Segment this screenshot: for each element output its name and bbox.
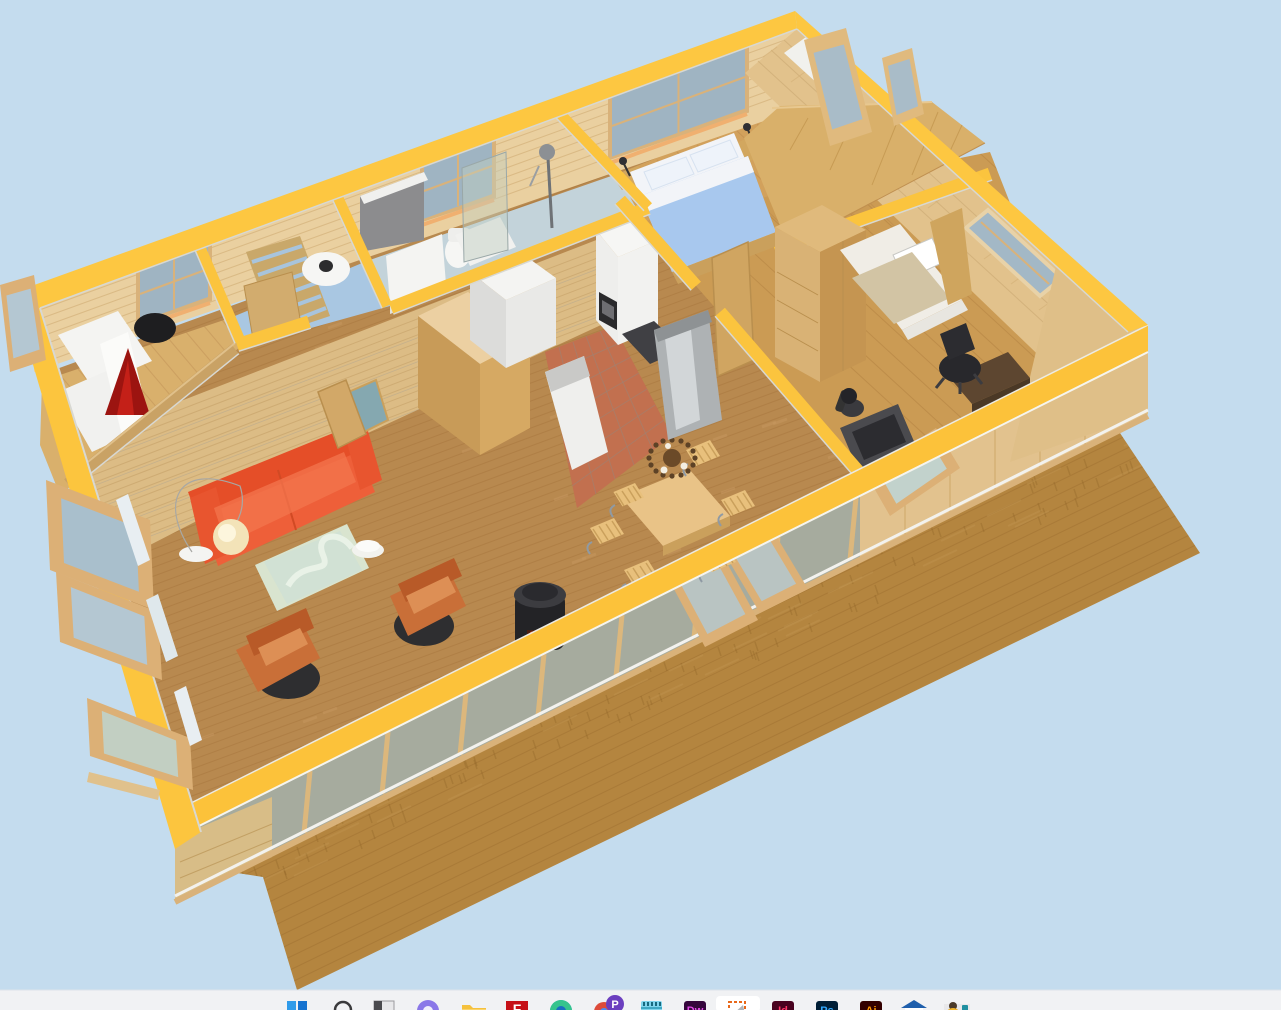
svg-text:Dw: Dw	[687, 1005, 704, 1010]
svg-text:P: P	[611, 999, 618, 1010]
svg-text:F: F	[513, 1001, 522, 1010]
svg-text:Ps: Ps	[820, 1005, 833, 1010]
svg-text:Ai: Ai	[866, 1005, 877, 1010]
svg-text:Id: Id	[778, 1005, 788, 1010]
